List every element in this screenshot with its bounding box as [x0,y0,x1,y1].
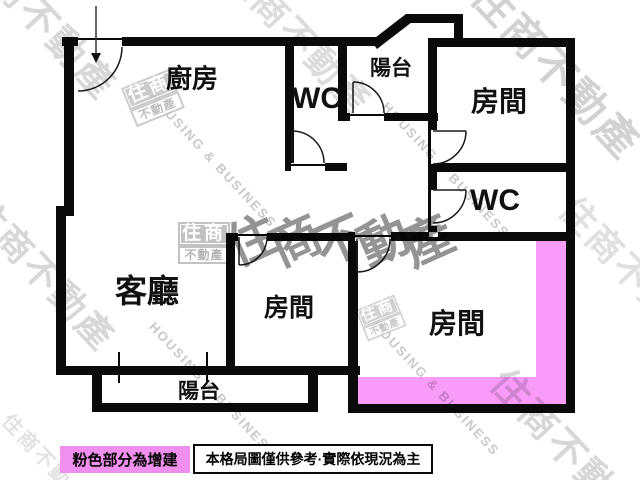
wall-living-divider [226,233,235,375]
wall-pink-bottom [348,404,575,413]
wc-right-threshold [429,190,431,226]
room-label-balcony-top: 陽台 [370,52,412,82]
bedroom-pink-threshold [355,235,391,237]
bedroom-tr-threshold [429,130,431,164]
floor-plan: 廚房 WC 陽台 房間 WC 客廳 房間 房間 陽台 住商不動產 住商不動產 住… [0,0,640,480]
addition-band-bottom [358,377,566,404]
room-label-kitchen: 廚房 [166,59,218,96]
wall-living-left [56,206,66,375]
room-label-wc-right: WC [470,184,520,218]
watermark-logo: 住商 不動產 [355,295,406,342]
room-label-bedroom-tr: 房間 [471,80,527,120]
entry-arrow-icon [91,6,101,63]
watermark-brand-center: 住商不動產 [230,216,450,266]
watermark-brand-en: HOUSING & BUSINESS [146,89,280,231]
room-label-bedroom-pink: 房間 [429,302,485,342]
wall-diagonal [374,18,409,45]
room-label-living: 客廳 [115,266,179,312]
bedroom-center-threshold [238,234,267,236]
wc-top-threshold [291,164,325,166]
room-label-bedroom-center: 房間 [264,288,314,324]
bedroom-pink-door-arc [357,239,390,272]
wc-right-door-arc [433,190,466,223]
legend-addition-note: 粉色部分為增建 [60,446,190,473]
balcony-top-door-arc [353,82,384,113]
bedroom-center-door-arc [239,237,267,265]
legend-disclaimer: 本格局圖僅供參考·實際依現況為主 [193,444,433,474]
watermark-logo: 住商 不動產 [178,222,230,264]
room-label-wc-top: WC [292,82,342,116]
entry-door-arc [78,47,122,91]
wall-pink-left [348,232,358,413]
balcony-top-threshold [350,114,384,116]
bedroom-tr-door-arc [433,131,466,164]
room-label-balcony-bottom: 陽台 [178,375,220,405]
wc-right-corner-notch [429,232,438,237]
wall-top-bedroom-tr [428,38,575,47]
wall-bedroom-tr-bottom [428,163,575,172]
window-tick-left [118,352,120,383]
wall-right [566,38,575,413]
wall-kitchen-left [64,37,74,214]
wc-top-door-arc [292,131,324,163]
entry-door-leaf [78,38,122,40]
wall-balcony-b-right [308,373,318,412]
